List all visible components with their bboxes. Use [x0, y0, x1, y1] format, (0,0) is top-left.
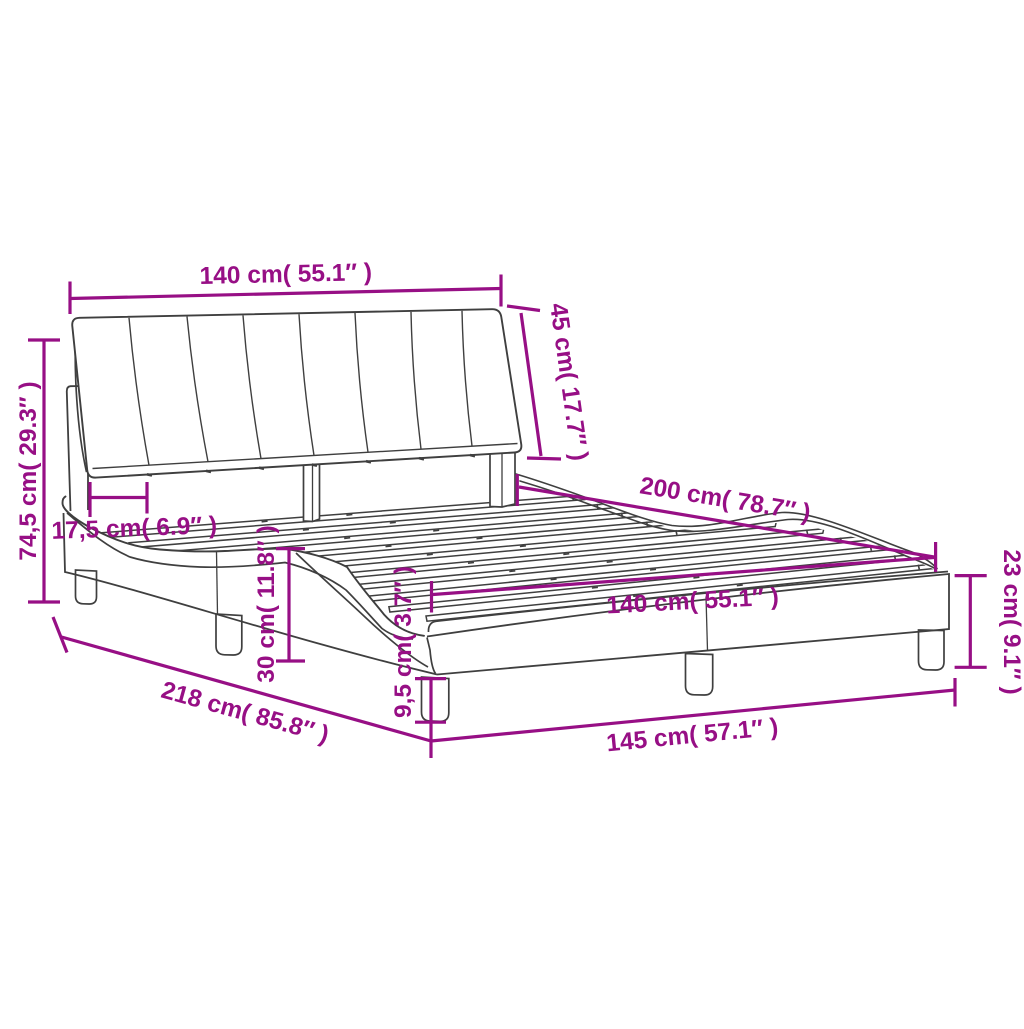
svg-text:23 cm( 9.1″ ): 23 cm( 9.1″ )	[998, 549, 1024, 694]
svg-text:74,5 cm( 29.3″ ): 74,5 cm( 29.3″ )	[15, 381, 42, 560]
svg-text:140 cm( 55.1″ ): 140 cm( 55.1″ )	[199, 259, 372, 290]
svg-text:30 cm( 11.8″ ): 30 cm( 11.8″ )	[253, 525, 280, 682]
svg-text:17,5 cm( 6.9″ ): 17,5 cm( 6.9″ )	[51, 512, 217, 545]
svg-text:9,5 cm( 3.7″ ): 9,5 cm( 3.7″ )	[390, 566, 417, 718]
